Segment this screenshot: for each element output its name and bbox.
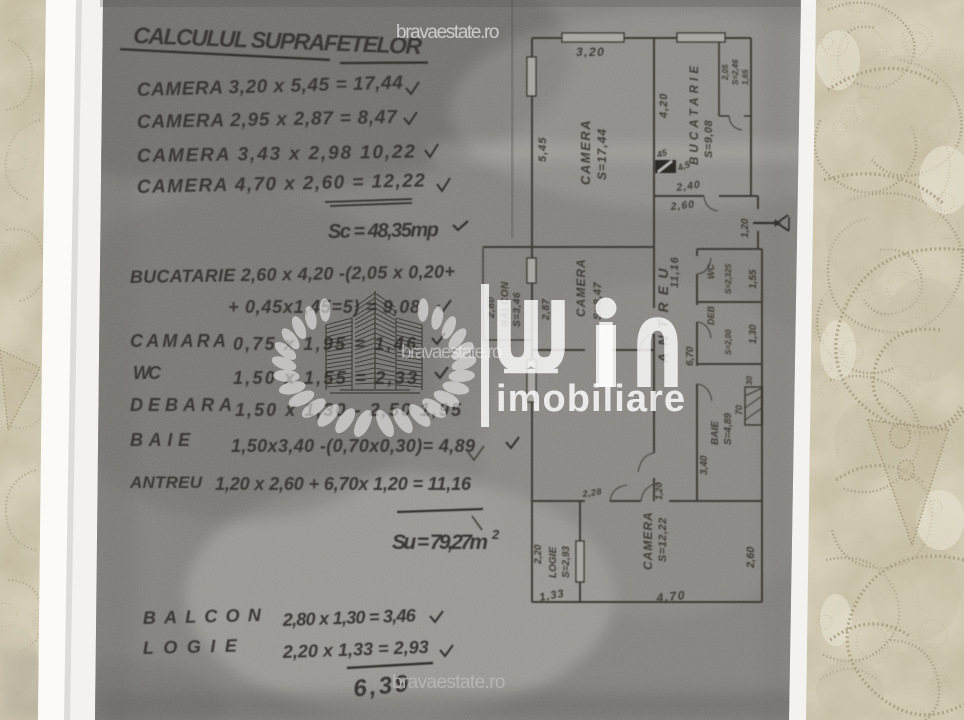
svg-text:S=17,44: S=17,44 bbox=[595, 128, 609, 180]
svg-text:S=9,08: S=9,08 bbox=[703, 119, 715, 158]
svg-text:2,60: 2,60 bbox=[745, 546, 757, 569]
svg-text:bravaestate.ro: bravaestate.ro bbox=[401, 342, 503, 363]
svg-text:3,40: 3,40 bbox=[699, 455, 710, 475]
svg-text:BAIE: BAIE bbox=[130, 430, 192, 450]
svg-text:2: 2 bbox=[491, 527, 500, 542]
svg-text:LOGIE: LOGIE bbox=[548, 547, 559, 578]
svg-text:2,05: 2,05 bbox=[721, 64, 730, 81]
svg-text:CAMERA: CAMERA bbox=[574, 258, 588, 317]
svg-text:4,20: 4,20 bbox=[658, 93, 670, 119]
svg-text:BUCATARIE: BUCATARIE bbox=[689, 65, 701, 165]
svg-text:1,65: 1,65 bbox=[741, 69, 750, 85]
svg-text:30: 30 bbox=[745, 376, 754, 385]
svg-text:WC: WC bbox=[706, 264, 716, 279]
svg-text:3,20: 3,20 bbox=[576, 45, 605, 59]
svg-text:Su = 79,27m: Su = 79,27m bbox=[392, 531, 490, 554]
svg-text:DEB: DEB bbox=[706, 305, 716, 325]
svg-text:2,20: 2,20 bbox=[533, 544, 544, 565]
svg-text:CAMERA 3,43 x 2,98 10,22: CAMERA 3,43 x 2,98 10,22 bbox=[137, 142, 417, 167]
svg-text:imobiliare: imobiliare bbox=[496, 378, 684, 420]
svg-text:CAMARA: CAMARA bbox=[130, 331, 228, 351]
svg-text:S=2,46: S=2,46 bbox=[731, 59, 740, 85]
svg-text:1,30: 1,30 bbox=[748, 324, 759, 344]
svg-text:bravaestate.ro: bravaestate.ro bbox=[392, 672, 506, 693]
svg-text:S=2,93: S=2,93 bbox=[561, 546, 572, 578]
svg-text:CAMERA: CAMERA bbox=[641, 511, 655, 570]
svg-text:S=4,89: S=4,89 bbox=[723, 413, 734, 445]
svg-text:5,45: 5,45 bbox=[537, 137, 549, 162]
svg-text:Sc = 48,35mp: Sc = 48,35mp bbox=[328, 219, 440, 243]
svg-text:1,50x3,40 -(0,70x0,30)= 4,89: 1,50x3,40 -(0,70x0,30)= 4,89 bbox=[231, 436, 477, 456]
svg-text:CAMERA: CAMERA bbox=[578, 119, 593, 185]
svg-text:1,20 x 2,60 + 6,70x 1,20 = 1: 1,20 x 2,60 + 6,70x 1,20 = 11,16 bbox=[215, 474, 473, 494]
svg-text:S=12,22: S=12,22 bbox=[657, 517, 669, 562]
svg-text:S=3,46: S=3,46 bbox=[512, 292, 523, 327]
svg-text:70: 70 bbox=[734, 405, 744, 415]
svg-text:11,16: 11,16 bbox=[669, 256, 681, 288]
svg-text:S=2,00: S=2,00 bbox=[724, 329, 733, 355]
svg-text:1,20: 1,20 bbox=[740, 218, 751, 238]
svg-text:2,87: 2,87 bbox=[541, 299, 552, 321]
svg-text:ANTREU: ANTREU bbox=[129, 473, 204, 492]
svg-text:1,20: 1,20 bbox=[654, 482, 664, 500]
svg-text:WC: WC bbox=[133, 363, 163, 383]
svg-text:6,70: 6,70 bbox=[685, 346, 696, 366]
svg-text:bravaestate.ro: bravaestate.ro bbox=[396, 22, 500, 43]
svg-text:BAIE: BAIE bbox=[710, 421, 721, 445]
svg-text:1,55: 1,55 bbox=[748, 269, 759, 289]
svg-text:S=2,325: S=2,325 bbox=[724, 263, 733, 294]
